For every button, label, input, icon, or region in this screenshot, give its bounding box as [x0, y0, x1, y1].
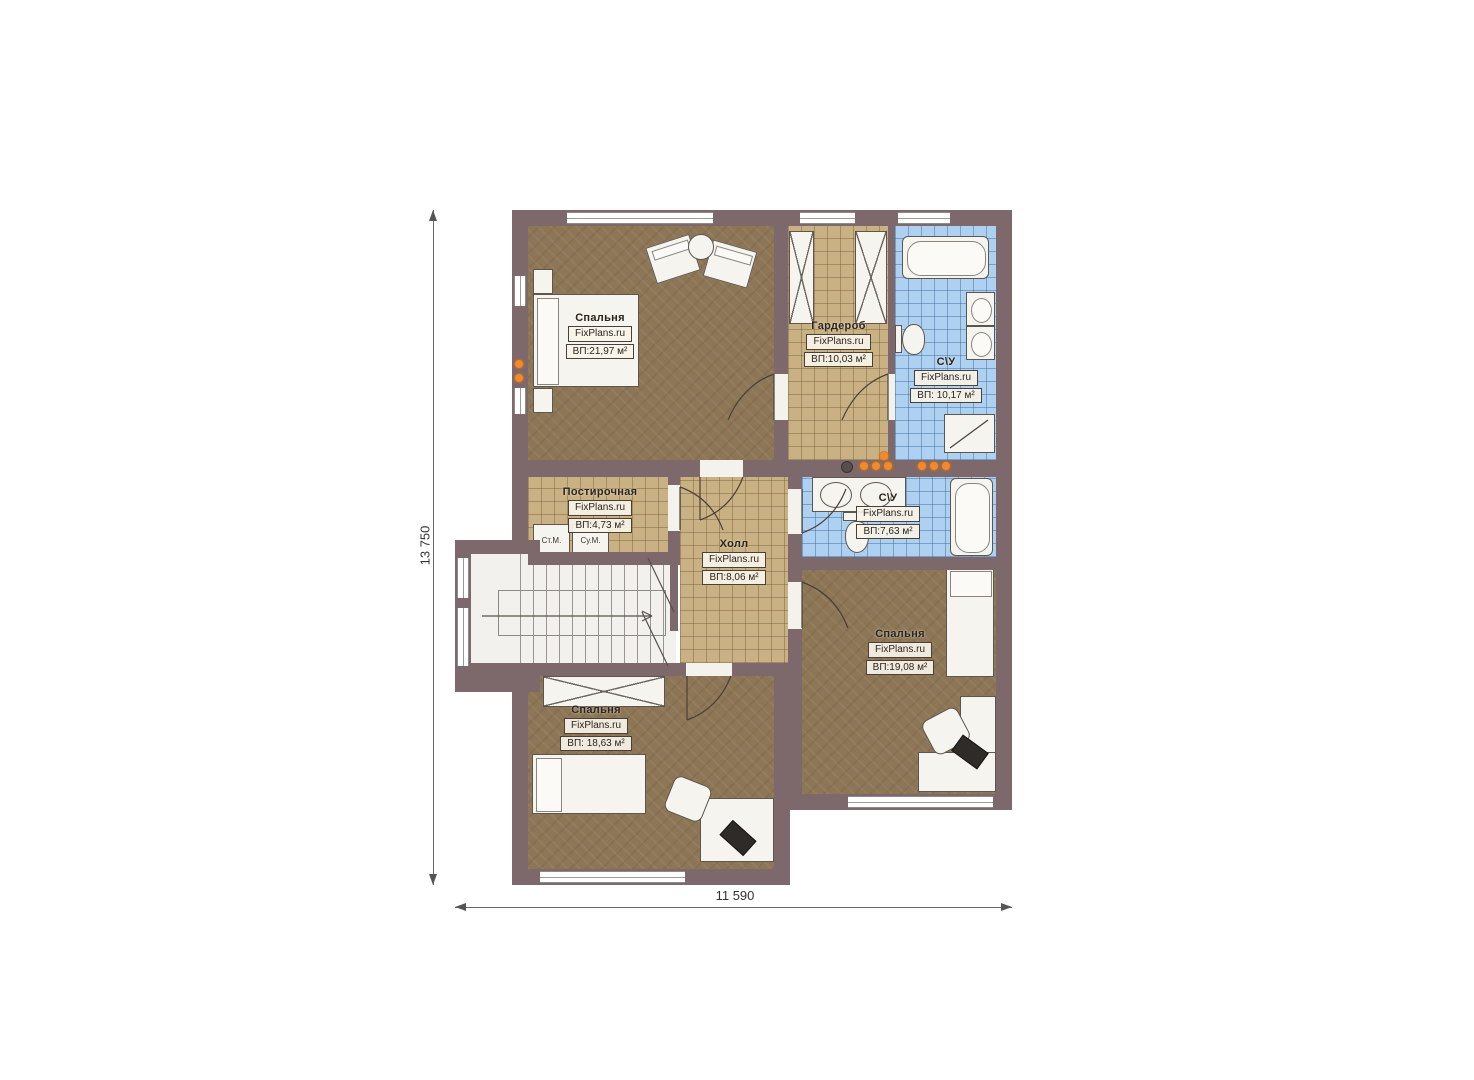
window: [800, 212, 855, 224]
brand-watermark: FixPlans.ru: [702, 552, 766, 568]
wall-light-icon: [515, 374, 523, 382]
wall-segment: [471, 663, 788, 676]
toilet: [895, 325, 902, 353]
room-name: Холл: [720, 538, 749, 550]
dimension-arrow-icon: [455, 903, 466, 911]
nightstand: [533, 388, 553, 413]
room-name: С\У: [937, 356, 956, 368]
brand-watermark: FixPlans.ru: [868, 642, 932, 658]
wall-light-icon: [880, 452, 888, 460]
room-name: Спальня: [575, 312, 625, 324]
round-table: [688, 234, 714, 260]
stair-railing: [498, 590, 666, 636]
wall-segment: [888, 226, 895, 460]
toilet: [902, 324, 925, 355]
room-area: ВП:4,73 м²: [568, 518, 631, 534]
door-opening: [788, 582, 802, 629]
room-area: ВП:7,63 м²: [856, 524, 919, 540]
brand-watermark: FixPlans.ru: [914, 370, 978, 386]
window: [540, 871, 685, 883]
room-label-bedroom1: Спальня FixPlans.ru ВП:21,97 м²: [548, 312, 652, 359]
wall-segment: [774, 663, 802, 794]
sink: [966, 326, 995, 360]
bed: [532, 754, 646, 814]
window: [567, 212, 713, 224]
wall-light-icon: [942, 462, 950, 470]
wall-segment: [996, 210, 1012, 810]
wall-light-icon: [918, 462, 926, 470]
wall-light-icon: [884, 462, 892, 470]
wall-segment: [528, 460, 996, 477]
wall-light-icon: [515, 360, 523, 368]
brand-watermark: FixPlans.ru: [568, 500, 632, 516]
door-opening: [888, 374, 895, 420]
door-opening: [788, 489, 802, 534]
room-area: ВП:19,08 м²: [866, 660, 935, 676]
dimension-height-label: 13 750: [418, 516, 433, 576]
wall-segment: [512, 676, 528, 885]
brand-watermark: FixPlans.ru: [568, 326, 632, 342]
window: [514, 276, 526, 306]
room-area: ВП:10,03 м²: [804, 352, 873, 368]
room-name: С\У: [879, 492, 898, 504]
ceiling-light-icon: [841, 461, 853, 473]
room-name: Спальня: [875, 628, 925, 640]
room-area: ВП: 18,63 м²: [560, 736, 631, 752]
brand-watermark: FixPlans.ru: [806, 334, 870, 350]
sink: [966, 292, 995, 326]
window: [898, 212, 950, 224]
wall-light-icon: [930, 462, 938, 470]
closet: [855, 231, 887, 324]
door-opening: [774, 374, 788, 420]
dimension-arrow-icon: [1001, 903, 1012, 911]
brand-watermark: FixPlans.ru: [564, 718, 628, 734]
dimension-line-vertical: [433, 210, 434, 885]
room-area: ВП:8,06 м²: [702, 570, 765, 586]
room-label-bath1: С\У FixPlans.ru ВП: 10,17 м²: [898, 356, 994, 403]
dimension-arrow-icon: [429, 874, 437, 885]
wall-segment: [512, 210, 528, 554]
room-area: ВП:21,97 м²: [566, 344, 635, 360]
room-label-hall: Холл FixPlans.ru ВП:8,06 м²: [684, 538, 784, 585]
window: [848, 796, 993, 808]
wardrobe-cabinet: [543, 676, 665, 707]
room-label-bedroom3: Спальня FixPlans.ru ВП: 18,63 м²: [538, 704, 654, 751]
wall-segment: [528, 552, 680, 565]
room-label-laundry: Постирочная FixPlans.ru ВП:4,73 м²: [550, 486, 650, 533]
nightstand: [533, 269, 553, 294]
window: [514, 388, 526, 414]
window: [457, 558, 469, 598]
dimension-line-horizontal: [455, 907, 1012, 908]
room-name: Спальня: [571, 704, 621, 716]
wall-light-icon: [860, 462, 868, 470]
wall-segment: [802, 557, 996, 570]
dimension-arrow-icon: [429, 210, 437, 221]
room-name: Гардероб: [811, 320, 865, 332]
washer-label: Ст.М.: [542, 536, 562, 545]
room-name: Постирочная: [563, 486, 638, 498]
room-label-bath2: С\У FixPlans.ru ВП:7,63 м²: [838, 492, 938, 539]
closet: [789, 231, 814, 324]
door-opening: [686, 663, 732, 676]
dryer-label: Су.М.: [580, 536, 600, 545]
shower: [944, 414, 995, 453]
room-label-wardrobe: Гардероб FixPlans.ru ВП:10,03 м²: [790, 320, 887, 367]
floor-plan-page: Ст.М. Су.М.: [0, 0, 1474, 1080]
bathtub: [950, 478, 993, 556]
wall-light-icon: [872, 462, 880, 470]
room-area: ВП: 10,17 м²: [910, 388, 981, 404]
door-opening: [700, 460, 743, 477]
door-opening: [668, 485, 680, 531]
brand-watermark: FixPlans.ru: [856, 506, 920, 522]
wall-segment: [774, 226, 788, 460]
bathtub: [902, 236, 989, 279]
window: [457, 608, 469, 666]
room-label-bedroom2: Спальня FixPlans.ru ВП:19,08 м²: [845, 628, 955, 675]
dimension-width-label: 11 590: [700, 888, 770, 903]
wall-segment: [670, 565, 678, 631]
